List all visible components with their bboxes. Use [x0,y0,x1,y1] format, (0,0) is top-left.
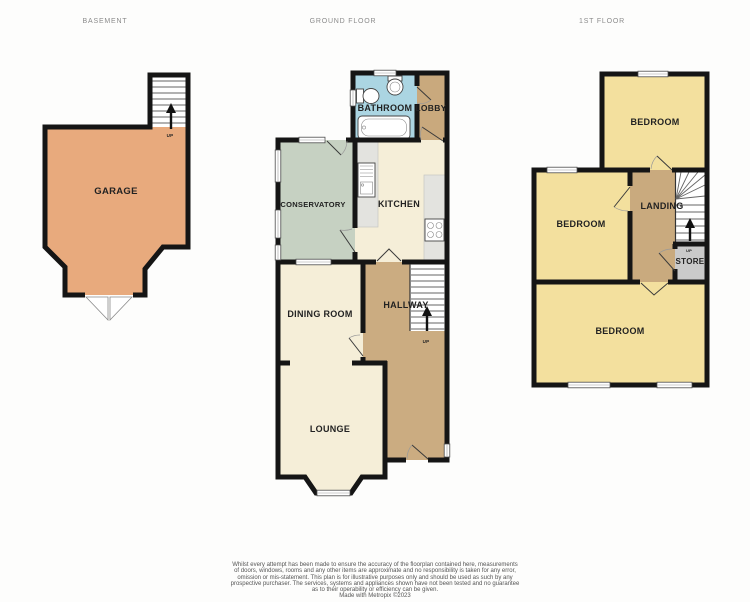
bathtub-icon [358,116,410,139]
kitchen-counter-right [424,175,445,260]
bathroom-label: BATHROOM [358,103,413,113]
ground-floor-header: GROUND FLOOR [310,18,377,25]
bedroom-mid-label: BEDROOM [556,219,605,229]
basement-stairwell [150,75,188,127]
sink-icon [387,76,403,95]
garage-door-swing [86,297,132,320]
floorplan-page: BASEMENT UP GARAGE GROUND FLOOR [0,0,750,602]
kitchen-label: KITCHEN [378,199,420,209]
landing-label: LANDING [640,201,683,211]
first-floor-plan: 1ST FLOOR [534,18,707,388]
disclaimer-text: Whilst every attempt has been made to en… [0,562,750,600]
toilet-icon [357,89,380,104]
hallway-label: HALLWAY [383,300,428,310]
conservatory-label: CONSERVATORY [280,200,345,209]
hallway-stairwell [410,262,447,331]
first-floor-header: 1ST FLOOR [579,18,625,25]
bedroom-bottom-label: BEDROOM [595,326,644,336]
floorplan-canvas: BASEMENT UP GARAGE GROUND FLOOR [0,0,750,602]
landing-room [630,170,676,282]
garage-label: GARAGE [94,186,138,197]
basement-plan: BASEMENT UP GARAGE [45,18,188,320]
lounge-label: LOUNGE [310,424,350,434]
ground-floor-plan: GROUND FLOOR [275,18,450,496]
lobby-label: LOBBY [415,103,446,113]
bedroom-top-label: BEDROOM [630,117,679,127]
first-up-label: UP [686,248,692,253]
kitchen-sink-icon [358,163,375,197]
hallway-up-label: UP [423,339,430,344]
stove-icon [425,219,444,241]
basement-up-label: UP [167,133,174,138]
store-label: STORE [676,257,705,266]
basement-header: BASEMENT [83,18,128,25]
dining-room-label: DINING ROOM [287,309,352,319]
disclaimer-made-with: Made with Metropix ©2023 [0,593,750,599]
